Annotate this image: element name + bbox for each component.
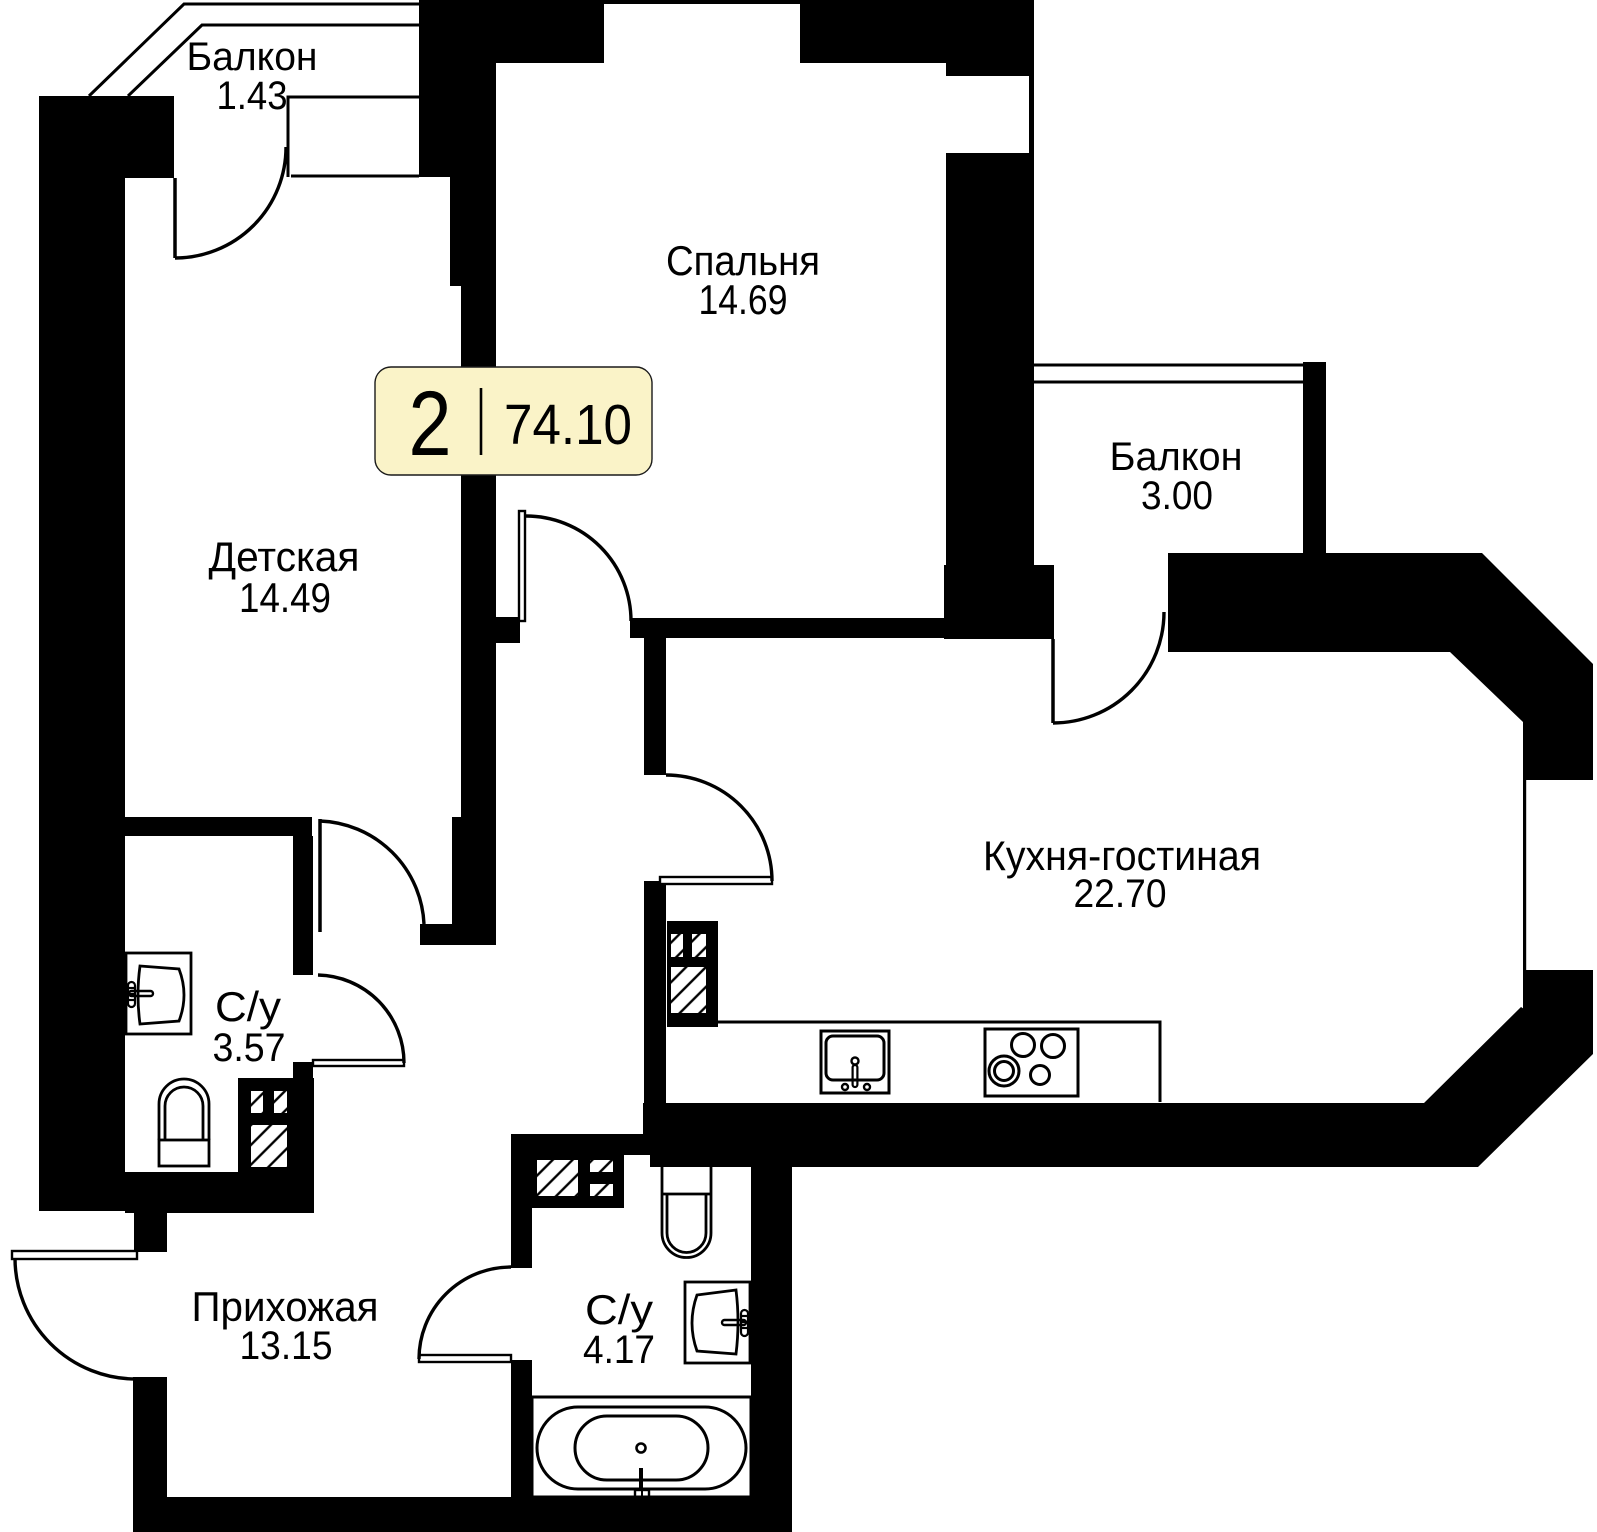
- svg-text:14.69: 14.69: [699, 276, 788, 323]
- svg-text:3.00: 3.00: [1141, 474, 1213, 518]
- svg-text:Балкон: Балкон: [1110, 435, 1243, 479]
- svg-text:14.49: 14.49: [239, 574, 331, 621]
- svg-text:22.70: 22.70: [1074, 872, 1167, 916]
- svg-text:Балкон: Балкон: [187, 35, 318, 79]
- svg-text:2: 2: [409, 373, 452, 475]
- svg-text:1.43: 1.43: [217, 74, 288, 118]
- svg-text:13.15: 13.15: [240, 1324, 333, 1368]
- svg-text:Детская: Детская: [209, 533, 360, 580]
- svg-text:С/у: С/у: [585, 1286, 653, 1333]
- svg-text:Прихожая: Прихожая: [192, 1283, 379, 1330]
- svg-text:3.57: 3.57: [213, 1026, 286, 1070]
- svg-text:74.10: 74.10: [504, 393, 632, 457]
- svg-text:4.17: 4.17: [583, 1328, 655, 1372]
- svg-text:С/у: С/у: [215, 983, 281, 1030]
